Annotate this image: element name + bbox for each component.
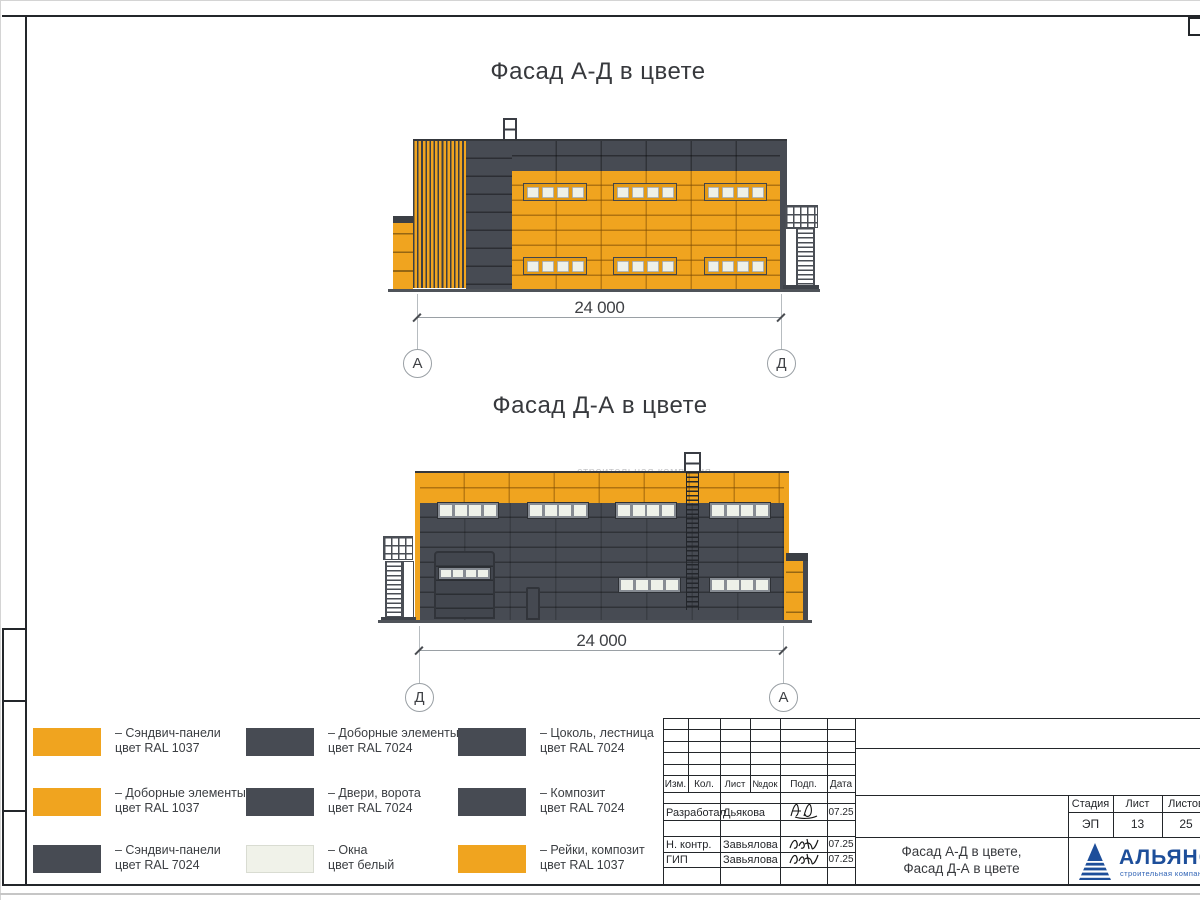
titleblock-line <box>663 741 855 742</box>
stage-label: Стадия <box>1068 798 1113 810</box>
sign-date: 07.25 <box>827 807 855 818</box>
rev-header-doc: №док <box>750 779 780 790</box>
rev-header-podp: Подп. <box>780 779 827 790</box>
sign-role: Разработал <box>666 807 726 819</box>
titleblock-line <box>663 820 855 821</box>
signature <box>788 837 820 852</box>
company-logo: АЛЬЯНС строительная компания <box>1078 841 1200 883</box>
signature <box>788 852 820 867</box>
rev-header-list: Лист <box>720 779 750 790</box>
titleblock-line <box>663 792 855 793</box>
logo-pyramid-icon <box>1078 842 1113 882</box>
titleblock-line <box>780 718 781 885</box>
titleblock-line <box>663 718 1200 719</box>
titleblock-line <box>663 836 855 837</box>
company-name: АЛЬЯНС <box>1119 846 1200 870</box>
rev-header-data: Дата <box>827 779 855 790</box>
sign-name: Завьялова <box>723 854 778 866</box>
sign-date: 07.25 <box>827 854 855 865</box>
doc-title-line2: Фасад Д-А в цвете <box>903 861 1019 876</box>
titleblock-line <box>663 729 855 730</box>
titleblock-line <box>663 752 855 753</box>
titleblock-line <box>663 803 855 804</box>
titleblock-line <box>663 718 664 885</box>
titleblock-line <box>720 718 721 885</box>
titleblock-line <box>1068 812 1200 813</box>
stage-value: ЭП <box>1068 817 1113 831</box>
sheet-value: 13 <box>1113 817 1162 831</box>
titleblock-line <box>663 867 855 868</box>
signature <box>787 800 823 819</box>
sheets-value: 25 <box>1162 817 1200 831</box>
titleblock-line <box>855 837 1200 838</box>
rev-header-izm: Изм. <box>663 779 688 790</box>
titleblock-line <box>855 748 1200 749</box>
titleblock-line <box>855 795 1200 796</box>
doc-title-line1: Фасад А-Д в цвете, <box>901 844 1021 859</box>
sign-role: ГИП <box>666 854 688 866</box>
sign-date: 07.25 <box>827 839 855 850</box>
titleblock-line <box>663 764 855 765</box>
titleblock-line <box>663 852 855 853</box>
doc-title: Фасад А-Д в цвете, Фасад Д-А в цвете <box>857 843 1066 877</box>
title-block: Изм. Кол. Лист №док Подп. Дата Разработа… <box>0 0 1200 900</box>
sign-name: Дьякова <box>723 807 765 819</box>
rev-header-kol: Кол. <box>688 779 720 790</box>
sheets-label: Листов <box>1162 798 1200 810</box>
company-subtitle: строительная компания <box>1120 869 1200 878</box>
titleblock-line <box>663 775 855 776</box>
sign-name: Завьялова <box>723 839 778 851</box>
sign-role: Н. контр. <box>666 839 711 851</box>
sheet-label: Лист <box>1113 798 1162 810</box>
